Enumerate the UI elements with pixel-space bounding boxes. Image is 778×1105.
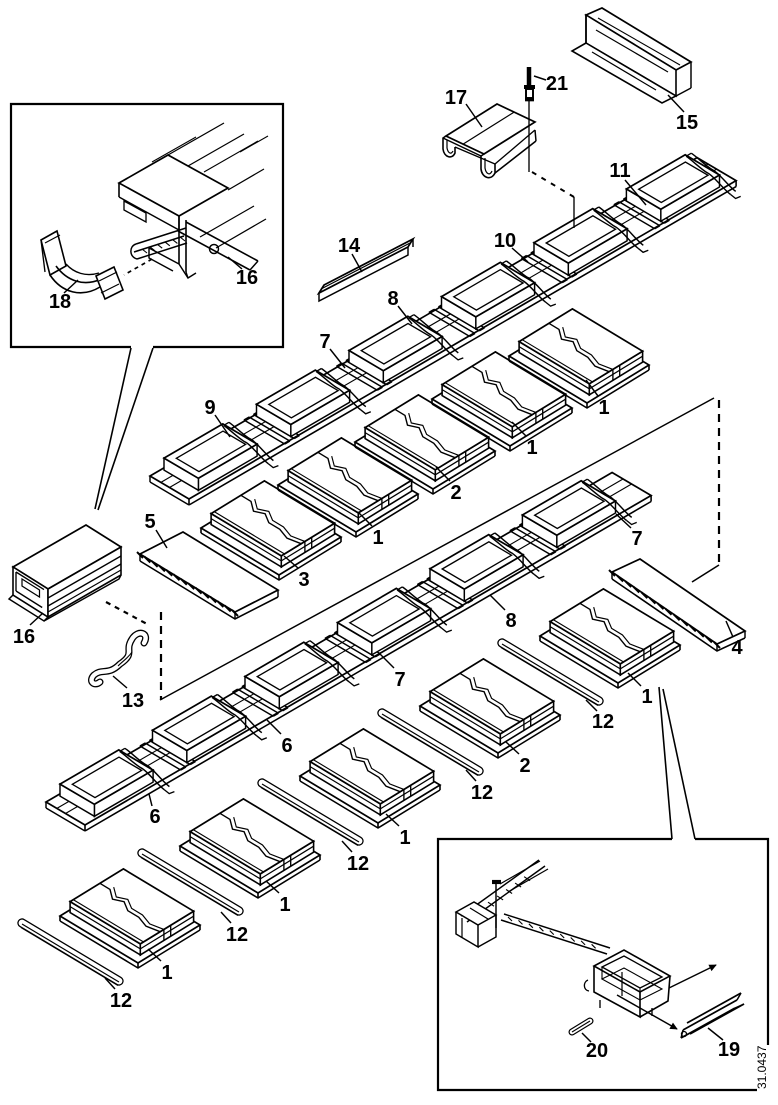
svg-text:7: 7 — [319, 331, 330, 353]
svg-text:15: 15 — [676, 112, 698, 134]
svg-text:19: 19 — [718, 1039, 740, 1061]
svg-text:13: 13 — [122, 690, 144, 712]
svg-text:14: 14 — [338, 235, 361, 257]
svg-text:11: 11 — [609, 160, 630, 182]
svg-text:16: 16 — [13, 626, 35, 648]
svg-text:12: 12 — [110, 990, 132, 1012]
svg-text:1: 1 — [598, 397, 609, 419]
svg-text:16: 16 — [236, 267, 258, 289]
svg-text:21: 21 — [546, 73, 568, 95]
svg-text:9: 9 — [204, 397, 215, 419]
svg-text:5: 5 — [144, 511, 155, 533]
svg-text:2: 2 — [450, 482, 461, 504]
svg-text:1: 1 — [399, 827, 410, 849]
svg-text:1: 1 — [526, 437, 537, 459]
svg-text:3: 3 — [298, 569, 309, 591]
svg-text:17: 17 — [445, 87, 467, 109]
svg-text:4: 4 — [731, 637, 743, 659]
svg-text:8: 8 — [505, 610, 516, 632]
svg-text:12: 12 — [471, 782, 493, 804]
svg-text:12: 12 — [226, 924, 248, 946]
svg-text:10: 10 — [494, 230, 516, 252]
svg-text:2: 2 — [519, 755, 530, 777]
svg-text:12: 12 — [347, 853, 369, 875]
svg-text:20: 20 — [586, 1040, 608, 1062]
svg-text:18: 18 — [49, 291, 71, 313]
svg-text:6: 6 — [281, 735, 292, 757]
svg-text:7: 7 — [394, 669, 405, 691]
svg-text:31.0437: 31.0437 — [755, 1045, 769, 1089]
svg-text:1: 1 — [372, 527, 383, 549]
svg-text:6: 6 — [149, 806, 160, 828]
svg-text:1: 1 — [641, 686, 652, 708]
svg-text:12: 12 — [592, 711, 614, 733]
svg-text:8: 8 — [387, 288, 398, 310]
svg-text:7: 7 — [631, 528, 642, 550]
svg-text:1: 1 — [161, 962, 172, 984]
svg-text:1: 1 — [279, 894, 290, 916]
